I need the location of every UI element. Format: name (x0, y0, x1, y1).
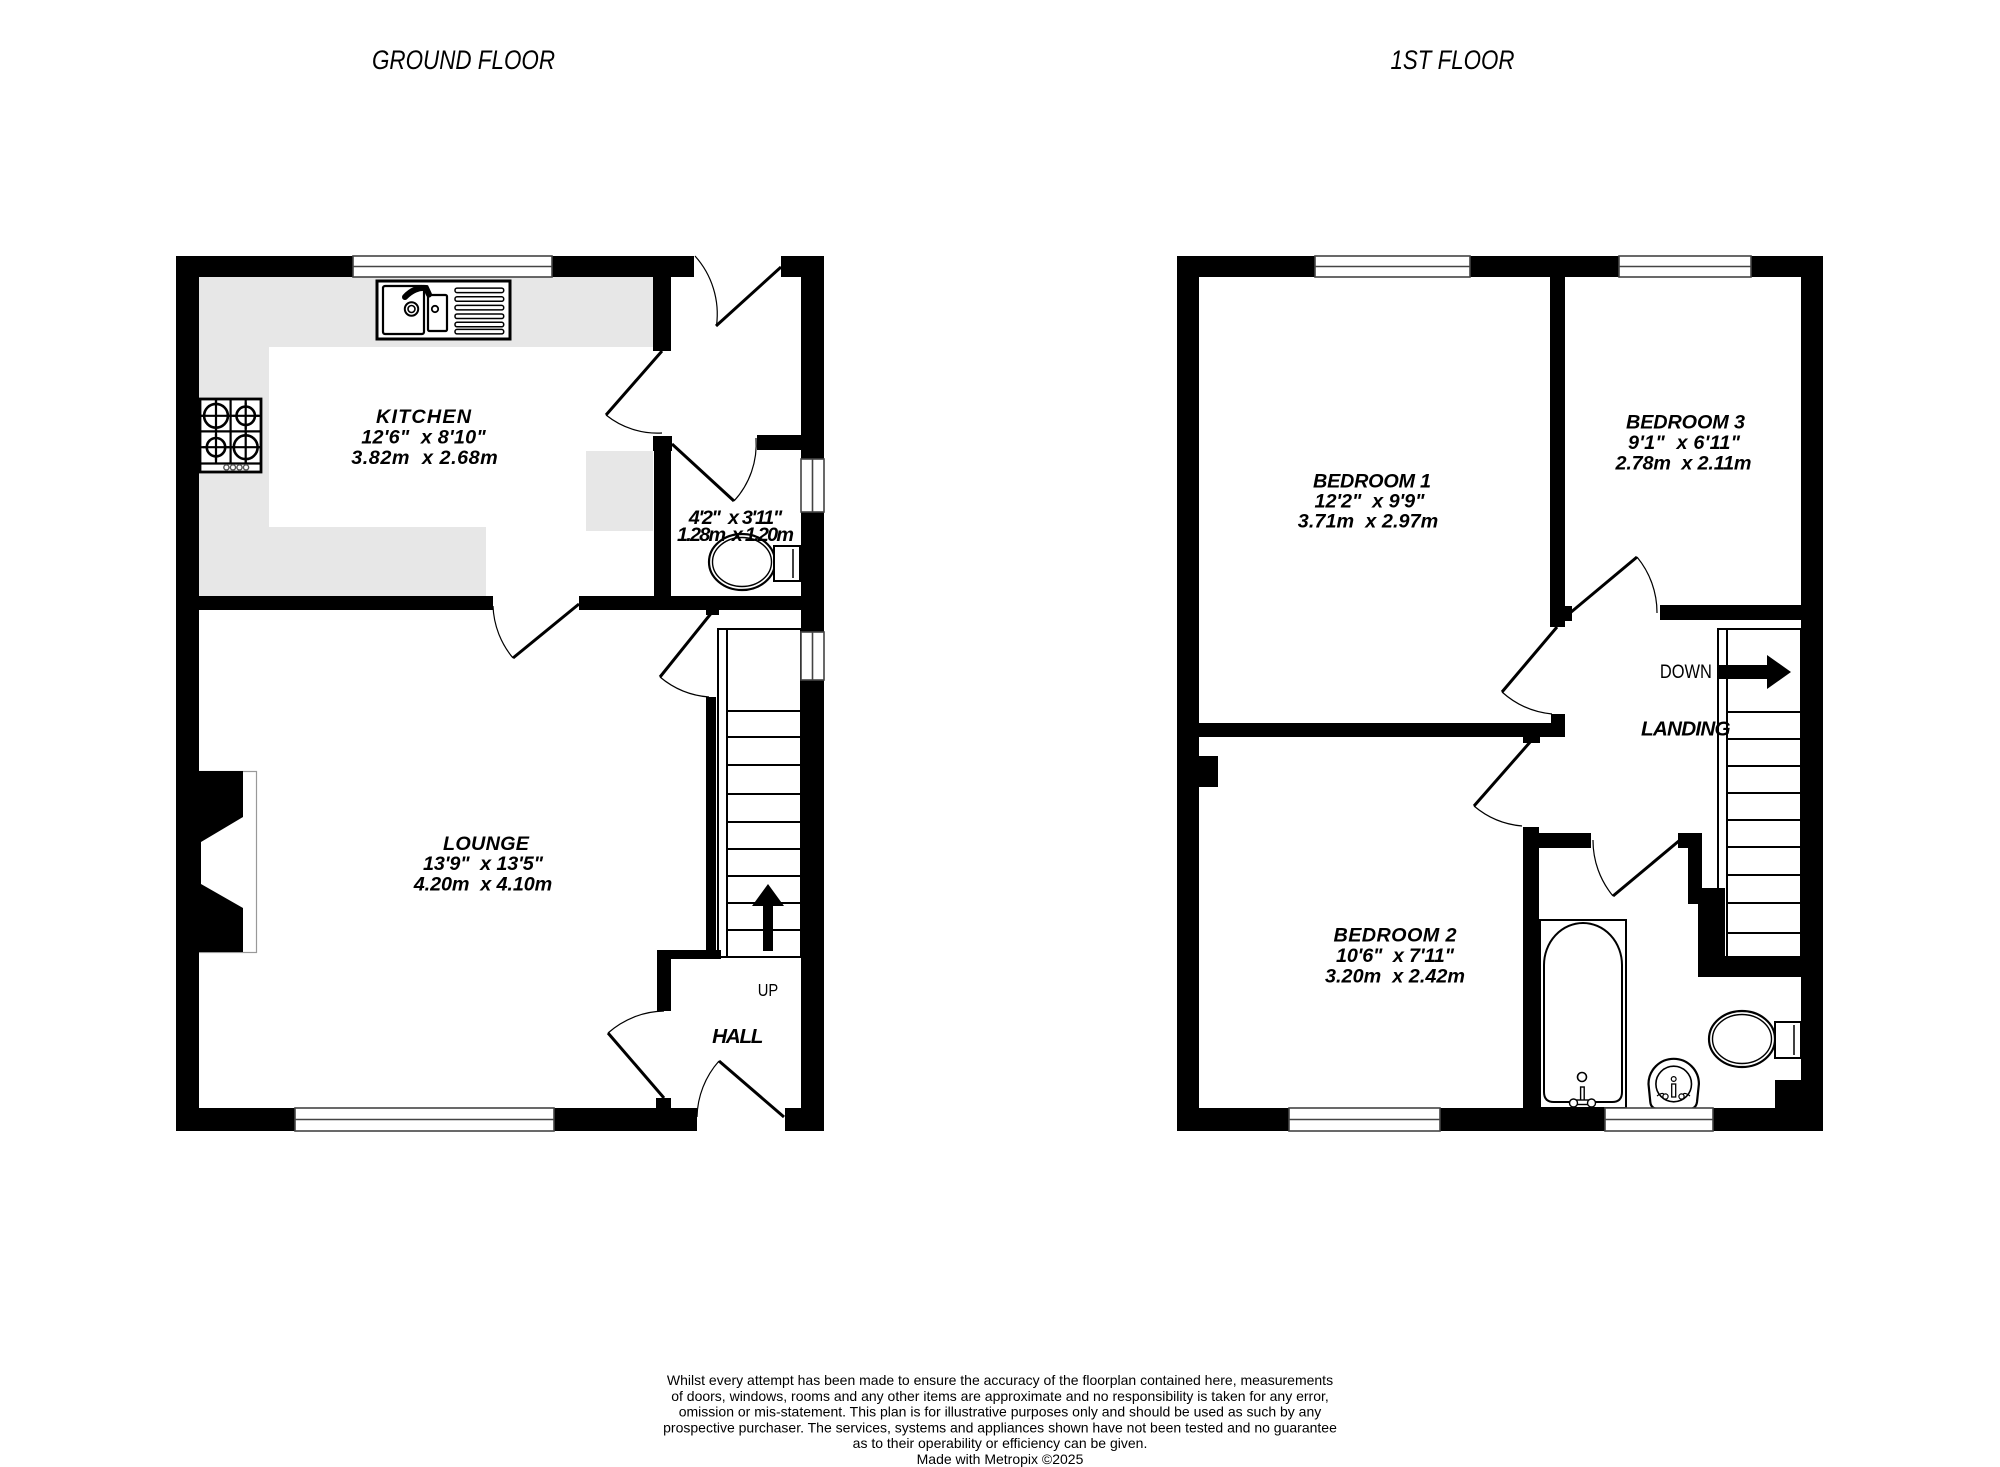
svg-text:as to their operability or eff: as to their operability or efficiency ca… (853, 1435, 1148, 1451)
svg-text:UP: UP (758, 980, 779, 1000)
svg-text:HALL: HALL (712, 1025, 763, 1048)
svg-text:LOUNGE: LOUNGE (443, 833, 530, 855)
svg-text:LANDING: LANDING (1641, 717, 1731, 740)
svg-text:2.78m x 2.11m: 2.78m x 2.11m (1615, 452, 1752, 474)
svg-text:of doors, windows, rooms and a: of doors, windows, rooms and any other i… (671, 1388, 1329, 1404)
svg-text:12'2" x 9'9": 12'2" x 9'9" (1315, 490, 1426, 512)
svg-text:BEDROOM 1: BEDROOM 1 (1313, 470, 1431, 492)
svg-text:3.20m x 2.42m: 3.20m x 2.42m (1325, 965, 1465, 987)
svg-text:1ST FLOOR: 1ST FLOOR (1391, 45, 1515, 75)
svg-text:9'1" x 6'11": 9'1" x 6'11" (1628, 432, 1741, 454)
svg-text:4.20m x 4.10m: 4.20m x 4.10m (413, 873, 553, 895)
svg-text:Made with Metropix ©2025: Made with Metropix ©2025 (917, 1451, 1084, 1467)
svg-text:10'6" x 7'11": 10'6" x 7'11" (1336, 945, 1455, 967)
svg-text:BEDROOM 3: BEDROOM 3 (1626, 411, 1745, 433)
svg-text:omission or mis-statement. Thi: omission or mis-statement. This plan is … (679, 1404, 1322, 1420)
svg-text:BEDROOM 2: BEDROOM 2 (1334, 924, 1457, 946)
svg-text:1.28m x 1.20m: 1.28m x 1.20m (677, 524, 794, 546)
svg-text:prospective purchaser. The ser: prospective purchaser. The services, sys… (663, 1420, 1337, 1436)
svg-text:13'9" x 13'5": 13'9" x 13'5" (423, 853, 544, 875)
svg-text:3.82m x 2.68m: 3.82m x 2.68m (351, 447, 498, 469)
svg-text:3.71m x 2.97m: 3.71m x 2.97m (1298, 510, 1439, 532)
svg-text:DOWN: DOWN (1660, 662, 1712, 683)
svg-text:12'6" x 8'10": 12'6" x 8'10" (361, 426, 486, 448)
svg-text:Whilst every attempt has been: Whilst every attempt has been made to en… (667, 1372, 1333, 1388)
svg-text:GROUND FLOOR: GROUND FLOOR (372, 45, 555, 75)
